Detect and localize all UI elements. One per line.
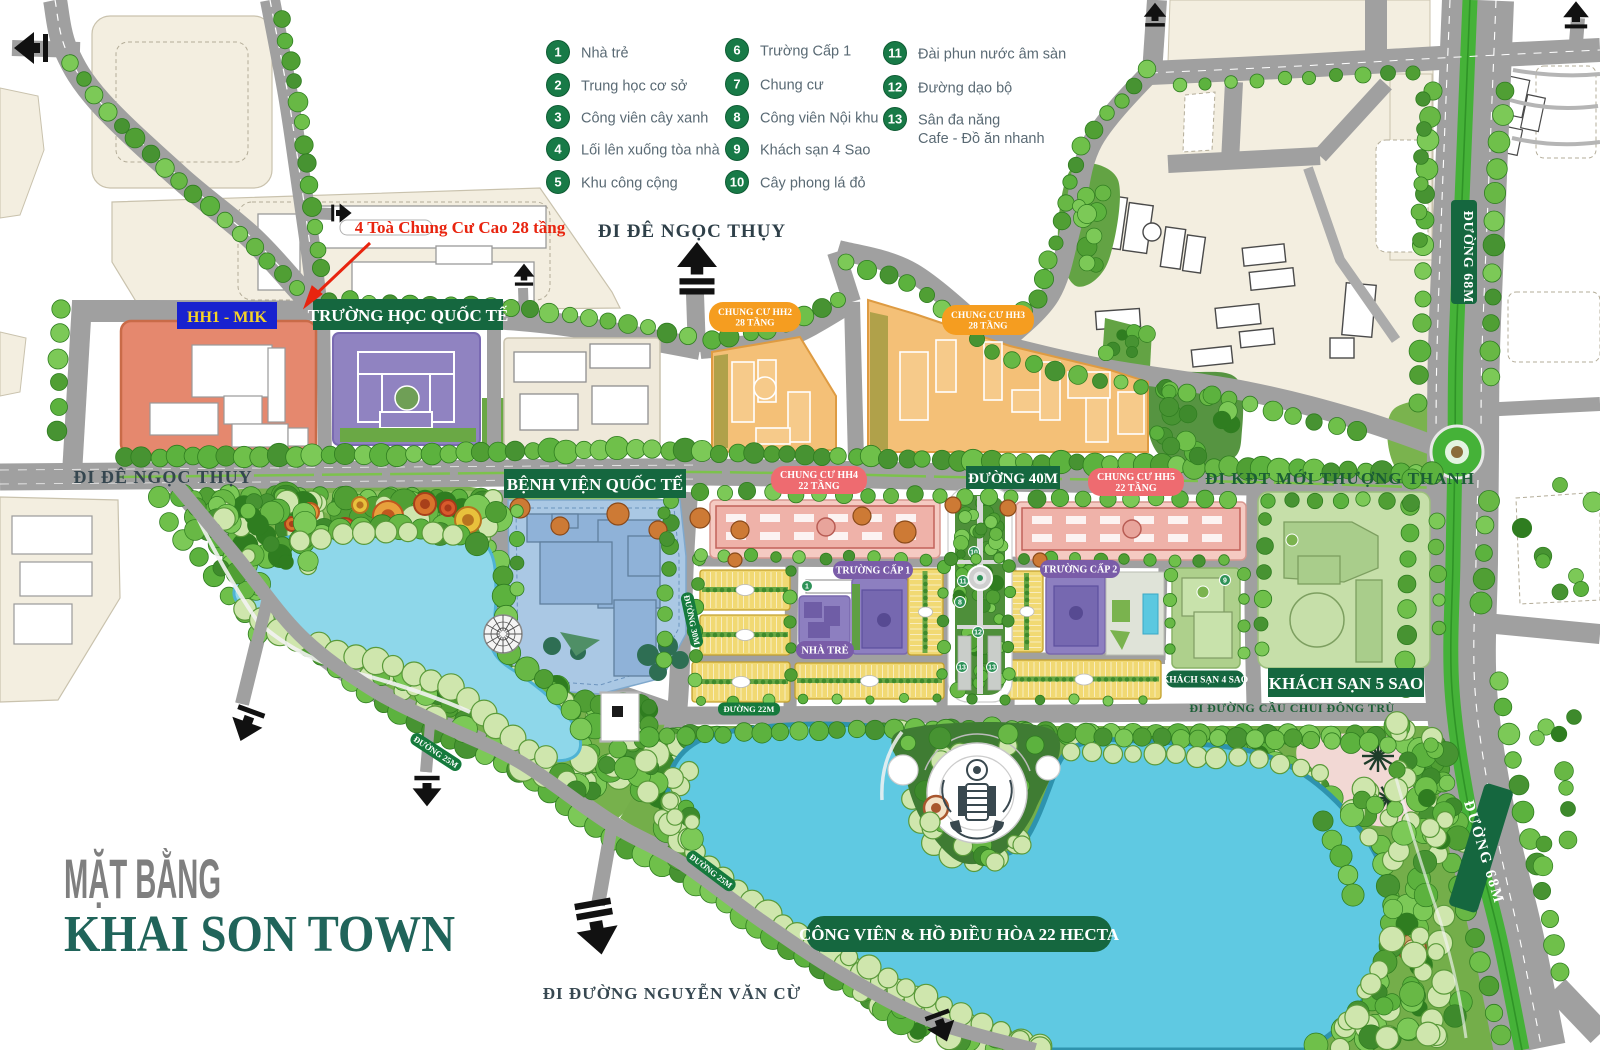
svg-text:Khu công cộng: Khu công cộng [581, 176, 678, 192]
svg-text:BỆNH VIỆN QUỐC TẾ: BỆNH VIỆN QUỐC TẾ [507, 474, 684, 494]
svg-text:5: 5 [554, 175, 561, 190]
svg-text:ĐI KĐT MỚI THƯỢNG THANH: ĐI KĐT MỚI THƯỢNG THANH [1205, 469, 1475, 488]
svg-text:13: 13 [888, 112, 902, 127]
svg-text:4: 4 [554, 142, 562, 157]
svg-text:TRƯỜNG CẤP 2: TRƯỜNG CẤP 2 [1043, 563, 1118, 576]
svg-text:1: 1 [554, 45, 561, 60]
svg-text:CHUNG CƯ HH3: CHUNG CƯ HH3 [951, 310, 1025, 321]
svg-text:3: 3 [554, 110, 561, 125]
svg-text:ĐƯỜNG 68M: ĐƯỜNG 68M [1460, 211, 1477, 304]
svg-text:ĐƯỜNG 22M: ĐƯỜNG 22M [724, 704, 775, 714]
svg-text:10: 10 [730, 175, 744, 190]
svg-text:Sân đa năng: Sân đa năng [918, 113, 1000, 129]
svg-text:Công viên Nội khu: Công viên Nội khu [760, 111, 879, 127]
svg-text:HH1 - MIK: HH1 - MIK [187, 309, 268, 326]
svg-text:22 TẦNG: 22 TẦNG [798, 479, 839, 492]
svg-text:Công viên cây xanh: Công viên cây xanh [581, 111, 708, 127]
svg-text:13: 13 [958, 665, 966, 672]
svg-text:Cây phong lá đỏ: Cây phong lá đỏ [760, 176, 866, 192]
svg-text:NHÀ TRẺ: NHÀ TRẺ [801, 645, 848, 657]
svg-text:Nhà trẻ: Nhà trẻ [581, 46, 629, 62]
svg-text:Đài phun nước âm sàn: Đài phun nước âm sàn [918, 47, 1066, 63]
svg-text:KHAI SON TOWN: KHAI SON TOWN [64, 906, 455, 963]
svg-text:11: 11 [888, 46, 902, 61]
svg-text:8: 8 [958, 600, 962, 607]
svg-text:ĐI ĐƯỜNG NGUYỄN VĂN CỪ: ĐI ĐƯỜNG NGUYỄN VĂN CỪ [543, 984, 801, 1003]
svg-text:2: 2 [554, 78, 561, 93]
svg-text:Trung học cơ sở: Trung học cơ sở [581, 79, 688, 95]
svg-text:Chung cư: Chung cư [760, 78, 824, 94]
svg-text:Khách sạn 4 Sao: Khách sạn 4 Sao [760, 143, 870, 159]
svg-text:CHUNG CƯ HH2: CHUNG CƯ HH2 [718, 307, 792, 318]
svg-text:ĐƯỜNG 40M: ĐƯỜNG 40M [968, 470, 1058, 487]
svg-text:CHUNG CƯ HH5: CHUNG CƯ HH5 [1097, 472, 1175, 483]
svg-text:Đường dạo bộ: Đường dạo bộ [918, 81, 1012, 97]
svg-text:CÔNG VIÊN & HỒ ĐIỀU HÒA 22 HEC: CÔNG VIÊN & HỒ ĐIỀU HÒA 22 HECTA [799, 924, 1120, 944]
svg-text:9: 9 [733, 142, 740, 157]
svg-text:7: 7 [733, 77, 740, 92]
svg-text:6: 6 [733, 43, 740, 58]
svg-text:TRƯỜNG CẤP 1: TRƯỜNG CẤP 1 [836, 564, 911, 577]
svg-text:4 Toà Chung Cư Cao 28 tầng: 4 Toà Chung Cư Cao 28 tầng [355, 218, 566, 237]
svg-text:12: 12 [888, 80, 902, 95]
svg-text:13: 13 [988, 665, 996, 672]
svg-text:12: 12 [974, 630, 982, 637]
svg-text:22 TẦNG: 22 TẦNG [1115, 481, 1156, 494]
svg-text:11: 11 [959, 579, 967, 586]
svg-text:CHUNG CƯ HH4: CHUNG CƯ HH4 [780, 470, 858, 481]
svg-text:MẶT BẰNG: MẶT BẰNG [64, 847, 221, 910]
svg-text:8: 8 [733, 110, 740, 125]
svg-text:KHÁCH SẠN 5 SAO: KHÁCH SẠN 5 SAO [1269, 674, 1423, 693]
svg-text:ĐI ĐÊ NGỌC THỤY: ĐI ĐÊ NGỌC THỤY [73, 466, 252, 487]
svg-text:ĐI ĐƯỜNG CẦU CHUI ĐÔNG TRÙ: ĐI ĐƯỜNG CẦU CHUI ĐÔNG TRÙ [1189, 700, 1394, 715]
svg-text:Lối lên xuống tòa nhà: Lối lên xuống tòa nhà [581, 143, 721, 159]
svg-text:Trường Cấp 1: Trường Cấp 1 [760, 44, 851, 60]
svg-text:9: 9 [1223, 578, 1227, 585]
svg-text:ĐI ĐÊ NGỌC THỤY: ĐI ĐÊ NGỌC THỤY [598, 220, 786, 242]
svg-text:TRƯỜNG HỌC QUỐC TẾ: TRƯỜNG HỌC QUỐC TẾ [308, 305, 509, 325]
svg-text:1: 1 [805, 584, 809, 591]
svg-text:Cafe - Đồ ăn nhanh: Cafe - Đồ ăn nhanh [918, 131, 1045, 147]
svg-text:KHÁCH SẠN 4 SAO: KHÁCH SẠN 4 SAO [1162, 673, 1248, 685]
